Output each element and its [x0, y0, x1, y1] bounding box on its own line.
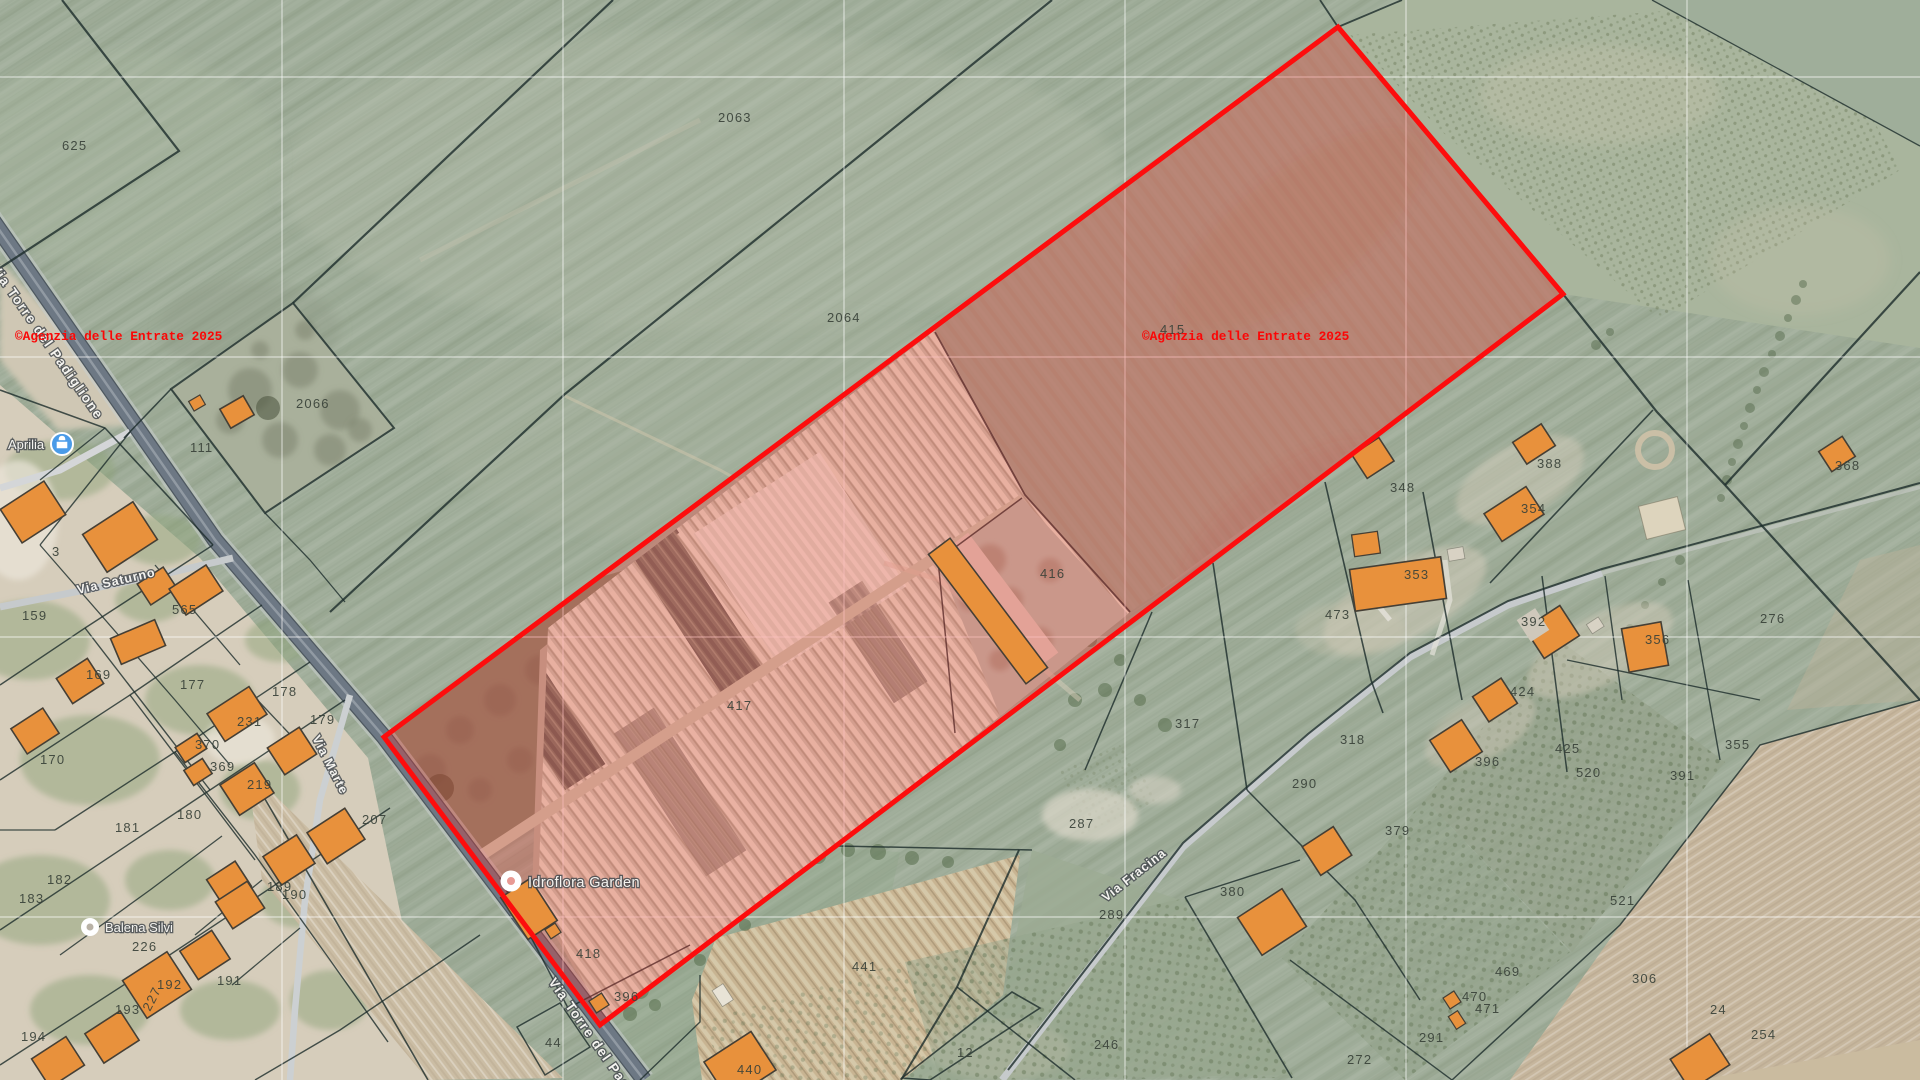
svg-text:425: 425 — [1555, 741, 1580, 756]
svg-text:231: 231 — [237, 714, 262, 729]
svg-text:Aprilia: Aprilia — [8, 437, 45, 452]
svg-text:3: 3 — [52, 544, 60, 559]
svg-text:191: 191 — [217, 973, 242, 988]
svg-text:520: 520 — [1576, 765, 1601, 780]
svg-text:2066: 2066 — [296, 396, 330, 411]
svg-text:2064: 2064 — [827, 310, 861, 325]
svg-text:111: 111 — [190, 440, 213, 455]
svg-text:379: 379 — [1385, 823, 1410, 838]
svg-text:194: 194 — [21, 1029, 46, 1044]
svg-text:441: 441 — [852, 959, 877, 974]
svg-text:246: 246 — [1094, 1037, 1119, 1052]
svg-text:348: 348 — [1390, 480, 1415, 495]
svg-text:287: 287 — [1069, 816, 1094, 831]
svg-text:392: 392 — [1521, 614, 1546, 629]
svg-text:306: 306 — [1632, 971, 1657, 986]
svg-text:44: 44 — [545, 1035, 562, 1050]
svg-text:181: 181 — [115, 820, 140, 835]
svg-text:521: 521 — [1610, 893, 1635, 908]
svg-text:290: 290 — [1292, 776, 1317, 791]
svg-text:417: 417 — [727, 698, 752, 713]
svg-text:182: 182 — [47, 872, 72, 887]
svg-text:471: 471 — [1475, 1001, 1500, 1016]
svg-text:2063: 2063 — [718, 110, 752, 125]
svg-text:369: 369 — [210, 759, 235, 774]
svg-text:396: 396 — [614, 989, 639, 1004]
svg-text:219: 219 — [247, 777, 272, 792]
svg-text:©Agenzia delle Entrate 2025: ©Agenzia delle Entrate 2025 — [1142, 329, 1350, 344]
svg-text:354: 354 — [1521, 501, 1546, 516]
svg-text:440: 440 — [737, 1062, 762, 1077]
svg-text:565: 565 — [172, 602, 197, 617]
svg-text:625: 625 — [62, 138, 87, 153]
svg-text:353: 353 — [1404, 567, 1429, 582]
svg-text:424: 424 — [1510, 684, 1535, 699]
svg-text:396: 396 — [1475, 754, 1500, 769]
svg-text:473: 473 — [1325, 607, 1350, 622]
svg-text:380: 380 — [1220, 884, 1245, 899]
svg-text:180: 180 — [177, 807, 202, 822]
svg-text:416: 416 — [1040, 566, 1065, 581]
svg-text:276: 276 — [1760, 611, 1785, 626]
svg-text:193: 193 — [115, 1002, 140, 1017]
svg-text:170: 170 — [40, 752, 65, 767]
svg-text:318: 318 — [1340, 732, 1365, 747]
svg-text:388: 388 — [1537, 456, 1562, 471]
svg-text:370: 370 — [195, 737, 220, 752]
svg-text:192: 192 — [157, 977, 182, 992]
svg-text:272: 272 — [1347, 1052, 1372, 1067]
svg-text:178: 178 — [272, 684, 297, 699]
svg-text:12: 12 — [957, 1045, 974, 1060]
svg-text:177: 177 — [180, 677, 205, 692]
svg-text:355: 355 — [1725, 737, 1750, 752]
svg-text:190: 190 — [282, 887, 307, 902]
svg-text:183: 183 — [19, 891, 44, 906]
svg-text:469: 469 — [1495, 964, 1520, 979]
svg-text:Balena Silvi: Balena Silvi — [105, 920, 173, 935]
svg-text:207: 207 — [362, 812, 387, 827]
svg-text:179: 179 — [310, 712, 335, 727]
svg-text:226: 226 — [132, 939, 157, 954]
svg-text:©Agenzia delle Entrate 2025: ©Agenzia delle Entrate 2025 — [15, 329, 223, 344]
svg-text:356: 356 — [1645, 632, 1670, 647]
svg-text:169: 169 — [86, 667, 111, 682]
svg-text:159: 159 — [22, 608, 47, 623]
svg-text:254: 254 — [1751, 1027, 1776, 1042]
svg-text:391: 391 — [1670, 768, 1695, 783]
svg-text:368: 368 — [1835, 458, 1860, 473]
svg-text:418: 418 — [576, 946, 601, 961]
svg-text:Idroflora Garden: Idroflora Garden — [528, 875, 640, 891]
svg-text:24: 24 — [1710, 1002, 1727, 1017]
svg-text:289: 289 — [1099, 907, 1124, 922]
svg-text:317: 317 — [1175, 716, 1200, 731]
svg-text:291: 291 — [1419, 1030, 1444, 1045]
